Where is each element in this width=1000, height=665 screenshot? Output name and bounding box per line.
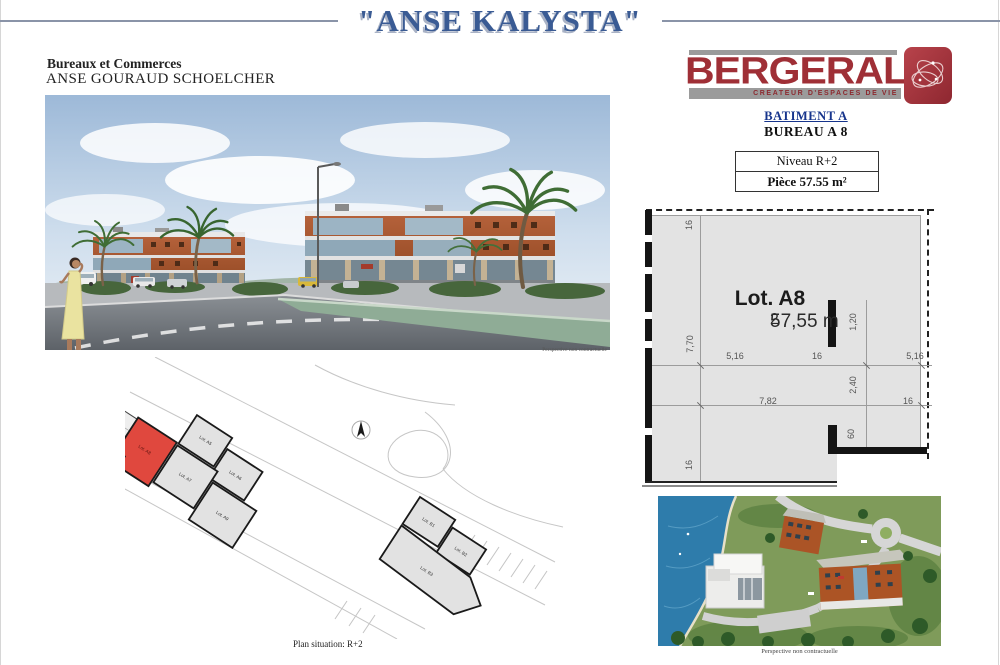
piece-row: Pièce 57.55 m² <box>736 171 878 191</box>
street-perspective-image <box>45 95 610 350</box>
bergeral-logo: BERGERAL CREATEUR D'ESPACES DE VIE <box>685 46 955 108</box>
dim-240: 2,40 <box>848 373 858 397</box>
bergeral-swirl-icon <box>903 46 953 105</box>
page-right-edge <box>998 0 999 665</box>
brochure-page: "ANSE KALYSTA" Bureaux et Commerces ANSE… <box>0 0 1000 665</box>
dim-line-h2 <box>650 405 932 406</box>
page-left-edge <box>0 0 1 665</box>
north-arrow <box>352 421 370 439</box>
dim-top16: 16 <box>684 217 694 233</box>
balcony-line1 <box>645 481 837 483</box>
dim-line-h1 <box>650 365 932 366</box>
logo-wordmark: BERGERAL <box>685 52 901 90</box>
batiment-label: BATIMENT A <box>660 109 952 124</box>
site-plan: Lot. A5 Lot. A6 Lot. A7 Lot. A8 Lot. A9 … <box>125 357 565 639</box>
plan-dashed-top <box>646 209 934 211</box>
step-wall <box>828 425 837 454</box>
unit-info-box: Niveau R+2 Pièce 57.55 m² <box>735 151 879 192</box>
dim-516r: 5,16 <box>900 351 930 361</box>
bureau-label: BUREAU A 8 <box>660 124 952 140</box>
aerial-perspective-image <box>658 496 941 646</box>
plan-dashed-right <box>927 209 929 459</box>
balcony-line2 <box>642 485 837 487</box>
subtitle-line2: ANSE GOURAUD SCHOELCHER <box>46 71 275 88</box>
niveau-row: Niveau R+2 <box>736 152 878 171</box>
subtitle-line1: Bureaux et Commerces <box>47 56 181 72</box>
right-building <box>305 204 555 283</box>
dim-line-v1 <box>700 215 701 481</box>
floor-plan: Lot. A8 57,55 m2 16 7,70 5,16 16 5,16 1,… <box>640 203 940 495</box>
page-title-text: "ANSE KALYSTA" <box>338 3 662 39</box>
perspective-caption: Perspective non contractuelle <box>45 347 607 353</box>
aerial-caption: Perspective non contractuelle <box>658 648 941 655</box>
site-batiment-a: Lot. A5 Lot. A6 Lot. A7 Lot. A8 Lot. A9 <box>125 374 283 548</box>
lot-label: Lot. A8 <box>700 287 840 311</box>
dim-60: 60 <box>846 424 856 444</box>
dim-16r: 16 <box>898 396 918 406</box>
logo-tagline: CREATEUR D'ESPACES DE VIE <box>689 88 901 99</box>
dim-516l: 5,16 <box>720 351 750 361</box>
dim-bottom16: 16 <box>684 457 694 473</box>
aerial-brick-building-2 <box>816 549 911 610</box>
site-plan-caption: Plan situation: R+2 <box>293 639 363 649</box>
dim-770: 7,70 <box>685 332 695 356</box>
bottom-right-wall <box>837 447 927 454</box>
white-building <box>706 554 764 608</box>
dim-120: 1,20 <box>848 310 858 334</box>
dim-line-v2 <box>866 300 867 454</box>
site-batiment-b: Lot. B1 Lot. B2 Lot. B3 <box>376 497 512 624</box>
dim-782: 7,82 <box>748 396 788 406</box>
page-title: "ANSE KALYSTA" <box>0 3 1000 39</box>
dim-16m: 16 <box>807 351 827 361</box>
